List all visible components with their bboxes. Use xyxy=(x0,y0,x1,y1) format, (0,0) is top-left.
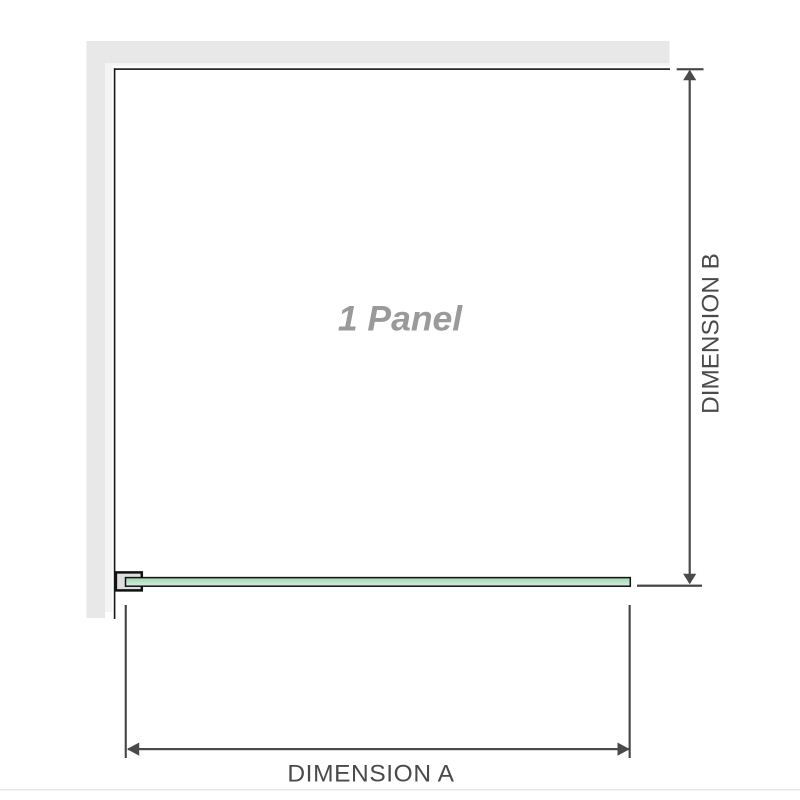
svg-text:DIMENSION A: DIMENSION A xyxy=(287,761,454,788)
svg-text:DIMENSION B: DIMENSION B xyxy=(698,253,725,414)
svg-text:1 Panel: 1 Panel xyxy=(338,299,463,339)
